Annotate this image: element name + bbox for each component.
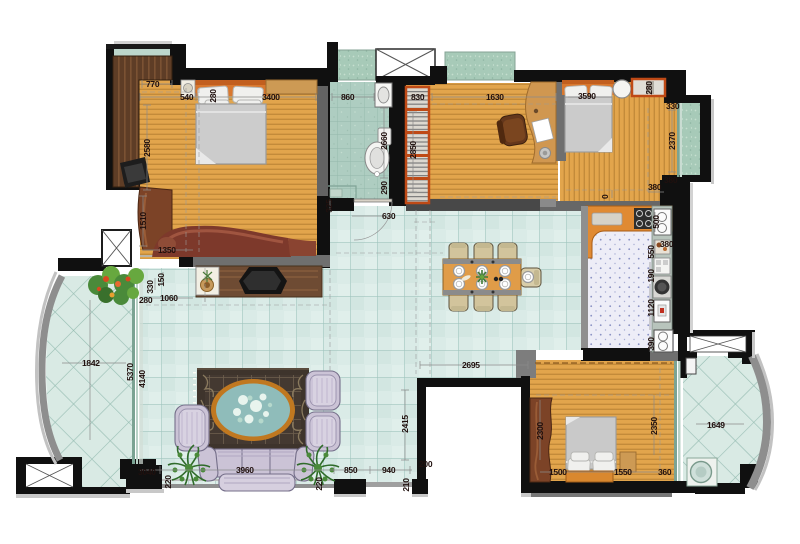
svg-text:3960: 3960 bbox=[236, 465, 254, 475]
svg-text:200: 200 bbox=[419, 459, 433, 469]
svg-text:220: 220 bbox=[314, 477, 324, 491]
svg-text:1630: 1630 bbox=[486, 92, 504, 102]
svg-text:770: 770 bbox=[146, 79, 160, 89]
svg-text:630: 630 bbox=[382, 211, 396, 221]
svg-text:500: 500 bbox=[651, 215, 661, 229]
svg-text:3400: 3400 bbox=[262, 92, 280, 102]
svg-text:1120: 1120 bbox=[646, 299, 656, 317]
svg-text:280: 280 bbox=[139, 295, 153, 305]
svg-text:1649: 1649 bbox=[707, 420, 725, 430]
svg-text:1500: 1500 bbox=[549, 467, 567, 477]
svg-text:1842: 1842 bbox=[82, 358, 100, 368]
svg-text:2415: 2415 bbox=[400, 415, 410, 433]
svg-text:2660: 2660 bbox=[379, 132, 389, 150]
svg-text:940: 940 bbox=[382, 465, 396, 475]
svg-text:3040: 3040 bbox=[138, 467, 156, 477]
svg-text:550: 550 bbox=[646, 245, 656, 259]
svg-text:330: 330 bbox=[145, 280, 155, 294]
svg-text:380: 380 bbox=[660, 239, 674, 249]
svg-text:325: 325 bbox=[324, 199, 334, 213]
svg-text:2580: 2580 bbox=[142, 139, 152, 157]
svg-text:1060: 1060 bbox=[160, 293, 178, 303]
svg-text:860: 860 bbox=[341, 92, 355, 102]
svg-text:2300: 2300 bbox=[535, 422, 545, 440]
svg-text:330: 330 bbox=[666, 101, 680, 111]
svg-text:540: 540 bbox=[180, 92, 194, 102]
svg-text:190: 190 bbox=[646, 269, 656, 283]
svg-text:2350: 2350 bbox=[649, 417, 659, 435]
svg-text:5370: 5370 bbox=[125, 363, 135, 381]
svg-text:380: 380 bbox=[648, 182, 662, 192]
svg-text:390: 390 bbox=[646, 337, 656, 351]
svg-text:0: 0 bbox=[600, 194, 610, 199]
svg-text:360: 360 bbox=[658, 467, 672, 477]
svg-text:2850: 2850 bbox=[408, 141, 418, 159]
svg-text:1510: 1510 bbox=[138, 212, 148, 230]
svg-text:290: 290 bbox=[379, 181, 389, 195]
svg-text:850: 850 bbox=[344, 465, 358, 475]
svg-text:380: 380 bbox=[664, 175, 678, 185]
svg-text:280: 280 bbox=[208, 89, 218, 103]
svg-text:220: 220 bbox=[163, 475, 173, 489]
svg-text:2695: 2695 bbox=[462, 360, 480, 370]
svg-text:1350: 1350 bbox=[158, 245, 176, 255]
svg-text:3590: 3590 bbox=[578, 91, 596, 101]
svg-text:210: 210 bbox=[401, 478, 411, 492]
svg-text:1550: 1550 bbox=[614, 467, 632, 477]
svg-text:280: 280 bbox=[644, 81, 654, 95]
svg-text:830: 830 bbox=[411, 92, 425, 102]
svg-text:2370: 2370 bbox=[667, 132, 677, 150]
svg-text:4140: 4140 bbox=[137, 370, 147, 388]
svg-text:150: 150 bbox=[156, 273, 166, 287]
